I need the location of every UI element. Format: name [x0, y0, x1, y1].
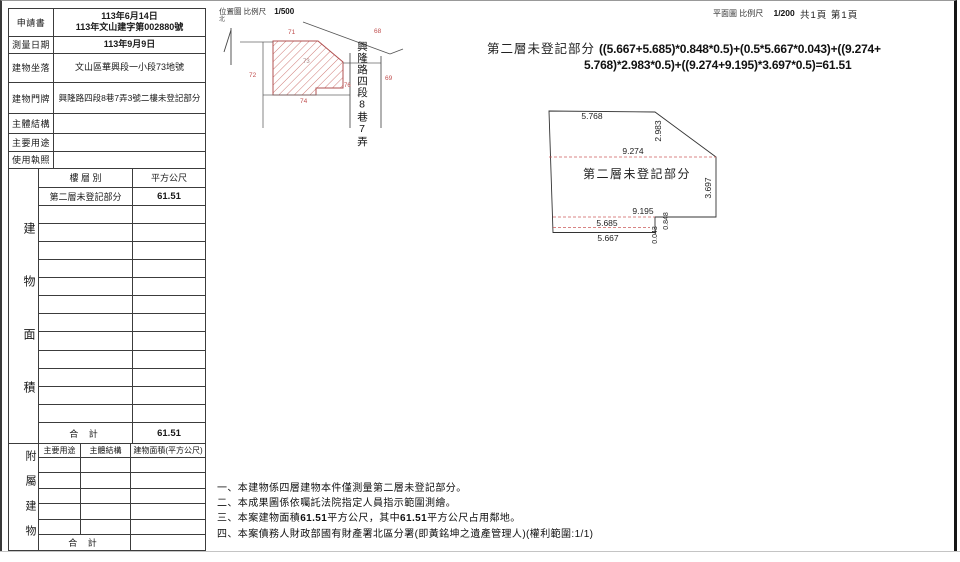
column-header-structure: 主體結構	[81, 444, 131, 457]
empty-cell	[133, 242, 205, 259]
field-label: 建物門牌	[9, 83, 54, 113]
empty-cell	[133, 224, 205, 241]
floor-area-value: 61.51	[133, 188, 205, 205]
field-value	[54, 152, 205, 168]
formula-text: 5.768)*2.983*0.5)+((9.274+9.195)*3.697*0…	[584, 58, 851, 72]
empty-row	[39, 473, 205, 488]
note-text: 平方公尺占用鄰地。	[427, 513, 521, 524]
field-value: 文山區華興段一小段73地號	[54, 54, 205, 83]
north-arrow-icon	[224, 30, 231, 52]
note-line: 二、本成果圖係依囑託法院指定人員指示範圍測繪。	[217, 496, 593, 511]
dimension-label: 9.274	[622, 146, 644, 156]
plan-scale-value: 1/200	[773, 8, 794, 18]
empty-cell	[81, 504, 131, 518]
application-date: 113年6月14日	[101, 11, 158, 22]
empty-cell	[39, 369, 133, 386]
dimension-label: 0.043	[652, 226, 659, 244]
building-survey-table: 申請書 113年6月14日 113年文山建字第002880號 測量日期 113年…	[8, 8, 206, 551]
field-value: 113年9月9日	[54, 37, 205, 53]
empty-cell	[39, 520, 81, 534]
empty-cell	[131, 489, 205, 503]
total-row: 合 計 61.51	[39, 423, 205, 443]
parcel-label: 74	[300, 98, 308, 105]
floor-plan-title: 平面圖 比例尺 1/200	[713, 8, 795, 19]
table-row: 建物坐落 文山區華興段一小段73地號	[9, 54, 205, 84]
total-label: 合 計	[39, 423, 133, 443]
table-row: 申請書 113年6月14日 113年文山建字第002880號	[9, 9, 205, 37]
section-side-label: 建物面積	[9, 169, 39, 443]
table-row: 主要用途	[9, 134, 205, 152]
field-value	[54, 134, 205, 151]
empty-cell	[39, 504, 81, 518]
parcel-label: 69	[385, 75, 393, 82]
empty-row	[39, 405, 205, 423]
empty-cell	[39, 224, 133, 241]
empty-row	[39, 387, 205, 405]
page-count-label: 共1頁 第1頁	[800, 7, 858, 21]
empty-cell	[133, 369, 205, 386]
field-label: 主要用途	[9, 134, 54, 151]
dimension-label: 5.685	[596, 218, 618, 228]
empty-cell	[131, 473, 205, 487]
empty-cell	[39, 314, 133, 331]
field-label: 申請書	[9, 9, 54, 36]
empty-cell	[39, 242, 133, 259]
parcel-label: 72	[249, 72, 257, 79]
table-row: 第二層未登記部分 61.51	[39, 188, 205, 206]
column-header-area: 建物面積(平方公尺)	[131, 444, 205, 457]
empty-cell	[39, 387, 133, 404]
column-header-floor: 樓 層 別	[39, 169, 133, 187]
application-number: 113年文山建字第002880號	[76, 22, 184, 33]
empty-cell	[81, 489, 131, 503]
survey-notes: 一、本建物係四層建物本件僅測量第二層未登記部分。 二、本成果圖係依囑託法院指定人…	[217, 481, 593, 542]
table-row: 使用執照	[9, 152, 205, 169]
plan-scale-label: 平面圖 比例尺	[713, 9, 763, 18]
empty-cell	[131, 504, 205, 518]
floor-plan-drawing: 5.768 2.983 9.274 3.697 9.195 5.685 5.66…	[540, 95, 725, 250]
field-label: 使用執照	[9, 152, 54, 168]
column-header-use: 主要用途	[39, 444, 81, 457]
note-line: 一、本建物係四層建物本件僅測量第二層未登記部分。	[217, 481, 593, 496]
empty-cell	[131, 535, 205, 550]
north-label: 北	[219, 15, 225, 23]
empty-row	[39, 206, 205, 224]
empty-cell	[39, 260, 133, 277]
table-row: 測量日期 113年9月9日	[9, 37, 205, 54]
annex-building-section: 附屬建物 主要用途 主體結構 建物面積(平方公尺) 合 計	[9, 444, 205, 550]
empty-cell	[39, 473, 81, 487]
dimension-label: 2.983	[653, 120, 663, 142]
empty-cell	[39, 278, 133, 295]
field-value: 興隆路四段8巷7弄3號二樓未登記部分	[54, 83, 205, 113]
table-header-row: 主要用途 主體結構 建物面積(平方公尺)	[39, 444, 205, 458]
empty-cell	[81, 458, 131, 472]
empty-row	[39, 504, 205, 519]
empty-cell	[133, 278, 205, 295]
parcel-label: 68	[374, 28, 382, 35]
empty-cell	[39, 458, 81, 472]
total-row: 合 計	[39, 535, 205, 550]
empty-cell	[39, 296, 133, 313]
empty-cell	[133, 314, 205, 331]
empty-cell	[39, 351, 133, 368]
page-bottom-line	[0, 551, 960, 552]
subject-parcel-label: 73	[303, 59, 310, 65]
dimension-label: 5.768	[581, 111, 603, 121]
empty-row	[39, 489, 205, 504]
note-area-value: 61.51	[300, 513, 327, 524]
empty-cell	[133, 206, 205, 223]
empty-row	[39, 332, 205, 350]
empty-row	[39, 278, 205, 296]
empty-cell	[133, 332, 205, 349]
empty-row	[39, 369, 205, 387]
formula-label: 第二層未登記部分	[487, 42, 595, 56]
area-calculation: 第二層未登記部分((5.667+5.685)*0.848*0.5)+(0.5*5…	[487, 41, 881, 73]
empty-cell	[133, 405, 205, 422]
empty-cell	[133, 387, 205, 404]
empty-cell	[131, 458, 205, 472]
floor-name: 第二層未登記部分	[39, 188, 133, 205]
empty-cell	[81, 520, 131, 534]
empty-cell	[133, 351, 205, 368]
note-text: 三、本案建物面積	[217, 513, 300, 524]
note-line: 三、本案建物面積61.51平方公尺，其中61.51平方公尺占用鄰地。	[217, 511, 593, 526]
section-side-label: 附屬建物	[9, 444, 39, 550]
empty-cell	[39, 206, 133, 223]
location-map: 北 71 68 72 73 76 69 74	[215, 5, 415, 150]
empty-row	[39, 224, 205, 242]
field-value: 113年6月14日 113年文山建字第002880號	[54, 9, 205, 36]
formula-line-1: 第二層未登記部分((5.667+5.685)*0.848*0.5)+(0.5*5…	[487, 41, 881, 57]
table-row: 建物門牌 興隆路四段8巷7弄3號二樓未登記部分	[9, 83, 205, 114]
formula-text: ((5.667+5.685)*0.848*0.5)+(0.5*5.667*0.0…	[599, 42, 881, 56]
field-label: 主體結構	[9, 114, 54, 133]
empty-row	[39, 458, 205, 473]
table-row: 主體結構	[9, 114, 205, 134]
empty-cell	[131, 520, 205, 534]
street-name-label: 興隆路四段8巷7弄	[355, 41, 369, 148]
note-area-value: 61.51	[400, 513, 427, 524]
field-label: 建物坐落	[9, 54, 54, 83]
empty-cell	[39, 405, 133, 422]
parcel-label: 71	[288, 29, 296, 36]
formula-line-2: 5.768)*2.983*0.5)+((9.274+9.195)*3.697*0…	[487, 57, 881, 73]
note-line: 四、本案債務人財政部國有財產署北區分署(即黃銘坤之遺產管理人)(權利範圍:1/1…	[217, 527, 593, 542]
table-header-row: 樓 層 別 平方公尺	[39, 169, 205, 188]
annex-table: 主要用途 主體結構 建物面積(平方公尺) 合 計	[39, 444, 205, 550]
empty-cell	[133, 296, 205, 313]
column-header-area: 平方公尺	[133, 169, 205, 187]
subject-parcel-polygon	[273, 41, 343, 95]
note-text: 平方公尺，其中	[327, 513, 400, 524]
total-label: 合 計	[39, 535, 131, 550]
parcel-label: 76	[344, 83, 351, 89]
empty-row	[39, 296, 205, 314]
empty-cell	[81, 473, 131, 487]
dimension-label: 3.697	[703, 177, 713, 199]
empty-cell	[133, 260, 205, 277]
field-value	[54, 114, 205, 133]
empty-row	[39, 242, 205, 260]
total-value: 61.51	[133, 423, 205, 443]
empty-cell	[39, 489, 81, 503]
dimension-label: 5.667	[597, 233, 619, 243]
dimension-label: 9.195	[632, 206, 654, 216]
road-line	[390, 49, 403, 54]
empty-row	[39, 260, 205, 278]
empty-cell	[39, 332, 133, 349]
empty-row	[39, 314, 205, 332]
empty-row	[39, 351, 205, 369]
dimension-label: 0.848	[663, 212, 670, 230]
floor-region-label: 第二層未登記部分	[583, 166, 691, 181]
empty-row	[39, 520, 205, 535]
building-area-section: 建物面積 樓 層 別 平方公尺 第二層未登記部分 61.51 合 計	[9, 169, 205, 444]
field-label: 測量日期	[9, 37, 54, 53]
floor-area-table: 樓 層 別 平方公尺 第二層未登記部分 61.51 合 計 61.51	[39, 169, 205, 443]
